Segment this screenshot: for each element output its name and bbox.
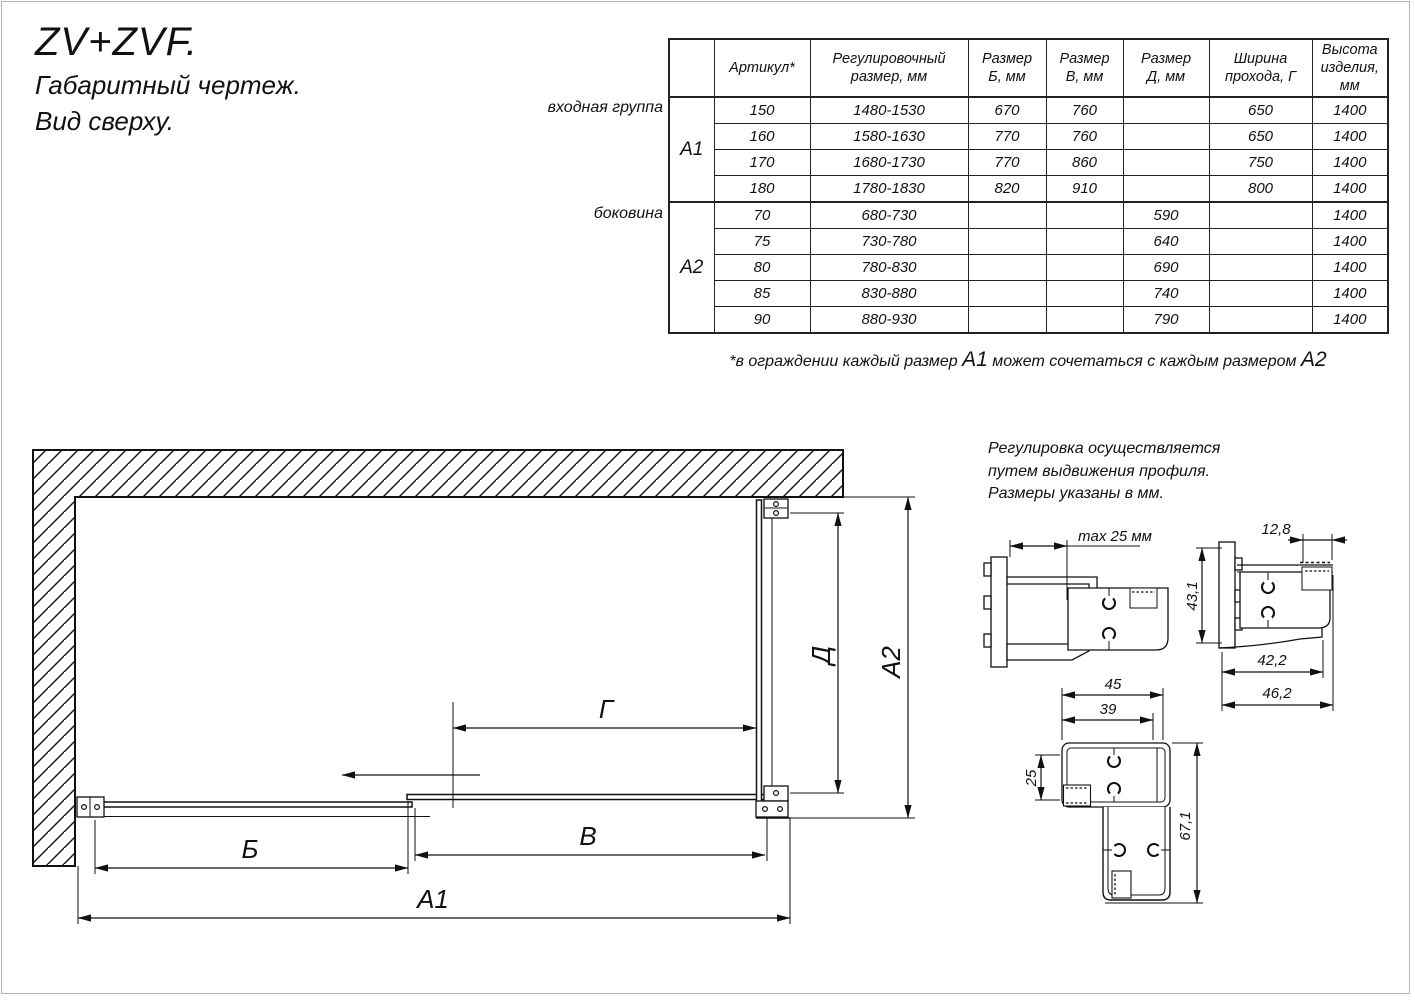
size-table: Артикул* Регулировочный размер, мм Разме… [668, 38, 1389, 334]
dim-label-46-2: 46,2 [1262, 685, 1292, 702]
dim-label-v: В [579, 821, 596, 851]
table-cell: 640 [1123, 229, 1209, 255]
header-height: Высота изделия, мм [1312, 39, 1388, 97]
header-size-b: Размер Б, мм [968, 39, 1046, 97]
dimensions: Б В А1 Г Д А2 [78, 497, 908, 918]
table-cell [1046, 307, 1123, 334]
header-size-d: Размер Д, мм [1123, 39, 1209, 97]
table-row: 180 1780-1830 820 910 800 1400 [669, 176, 1388, 203]
group-code-a2: А2 [669, 202, 714, 333]
dim-label-39: 39 [1100, 701, 1117, 718]
dim-label-b: Б [242, 834, 259, 864]
table-cell [1209, 255, 1312, 281]
table-row: 170 1680-1730 770 860 750 1400 [669, 150, 1388, 176]
wall-profile-bracket-left [77, 797, 104, 817]
side-panel-glass [757, 500, 762, 816]
table-cell [968, 307, 1046, 334]
table-cell: 80 [714, 255, 810, 281]
dim-label-12-8: 12,8 [1261, 521, 1291, 538]
table-cell: 170 [714, 150, 810, 176]
table-cell: 750 [1209, 150, 1312, 176]
header-article: Артикул* [714, 39, 810, 97]
table-cell [968, 229, 1046, 255]
header-adjust: Регулировочный размер, мм [810, 39, 968, 97]
table-row: А2 70 680-730 590 1400 [669, 202, 1388, 229]
footnote-a1: А1 [962, 348, 988, 371]
table-cell: 910 [1046, 176, 1123, 203]
table-cell: 1580-1630 [810, 124, 968, 150]
note-line: Регулировка осуществляется [988, 438, 1220, 461]
dim-label-67-1: 67,1 [1177, 811, 1194, 840]
table-cell: 760 [1046, 97, 1123, 124]
profile-detail-side: 12,8 43,1 42,2 46,2 [1184, 521, 1347, 711]
profile-detail-wall: max 25 мм [984, 528, 1168, 667]
wall-profile-bracket-top [764, 499, 788, 518]
table-cell [1209, 281, 1312, 307]
table-footnote: *в ограждении каждый размер А1 может соч… [668, 348, 1388, 372]
table-cell: 820 [968, 176, 1046, 203]
table-cell: 860 [1046, 150, 1123, 176]
table-cell: 1400 [1312, 97, 1388, 124]
table-cell: 670 [968, 97, 1046, 124]
table-cell [1123, 97, 1209, 124]
note-line: путем выдвижения профиля. [988, 461, 1220, 484]
table-cell: 1680-1730 [810, 150, 968, 176]
table-cell [1046, 229, 1123, 255]
dim-label-45: 45 [1105, 676, 1122, 693]
dim-label-42-2: 42,2 [1257, 652, 1287, 669]
table-cell [1209, 307, 1312, 334]
footnote-a2: А2 [1301, 348, 1327, 371]
table-cell: 650 [1209, 124, 1312, 150]
extension-lines [78, 497, 915, 924]
table-cell: 730-780 [810, 229, 968, 255]
table-cell [1046, 202, 1123, 229]
enclosure-plan [77, 499, 790, 818]
table-cell: 760 [1046, 124, 1123, 150]
table-cell: 160 [714, 124, 810, 150]
table-cell: 90 [714, 307, 810, 334]
drawing-subtitle: Габаритный чертеж. [35, 71, 301, 101]
fixed-panel-glass [90, 802, 412, 807]
table-cell: 1780-1830 [810, 176, 968, 203]
table-cell: 70 [714, 202, 810, 229]
table-cell: 740 [1123, 281, 1209, 307]
table-cell: 1400 [1312, 124, 1388, 150]
group-label-entrance: входная группа [443, 99, 663, 117]
note-line: Размеры указаны в мм. [988, 483, 1220, 506]
table-cell: 1480-1530 [810, 97, 968, 124]
footnote-text: *в ограждении каждый размер [729, 353, 962, 370]
dim-label-a2: А2 [876, 646, 906, 680]
table-cell: 790 [1123, 307, 1209, 334]
title-block: ZV+ZVF. Габаритный чертеж. Вид сверху. [35, 20, 301, 137]
table-cell [968, 255, 1046, 281]
dim-label-max25: max 25 мм [1078, 528, 1152, 545]
table-row: 160 1580-1630 770 760 650 1400 [669, 124, 1388, 150]
sliding-panel-glass [407, 795, 765, 800]
table-cell: 1400 [1312, 150, 1388, 176]
table-cell: 830-880 [810, 281, 968, 307]
table-cell [1123, 150, 1209, 176]
dim-label-a1: А1 [415, 884, 449, 914]
table-cell: 680-730 [810, 202, 968, 229]
table-cell: 150 [714, 97, 810, 124]
table-cell: 1400 [1312, 281, 1388, 307]
product-title: ZV+ZVF. [35, 20, 301, 65]
group-code-a1: А1 [669, 97, 714, 202]
table-cell [968, 202, 1046, 229]
table-cell: 1400 [1312, 255, 1388, 281]
table-cell [968, 281, 1046, 307]
table-header-row: Артикул* Регулировочный размер, мм Разме… [669, 39, 1388, 97]
table-cell: 1400 [1312, 176, 1388, 203]
table-cell: 1400 [1312, 307, 1388, 334]
table-cell: 1400 [1312, 202, 1388, 229]
profile-detail-corner: 45 39 25 67,1 [1023, 676, 1203, 903]
table-cell: 85 [714, 281, 810, 307]
dim-label-g: Г [599, 694, 615, 724]
table-cell: 1400 [1312, 229, 1388, 255]
table-cell [1123, 124, 1209, 150]
table-cell: 690 [1123, 255, 1209, 281]
table-cell [1046, 281, 1123, 307]
table-cell: 180 [714, 176, 810, 203]
drawing-page: Б В А1 Г Д А2 [0, 0, 1415, 1000]
group-label-sidewall: боковина [443, 205, 663, 223]
table-cell [1123, 176, 1209, 203]
table-cell: 780-830 [810, 255, 968, 281]
adjustment-note: Регулировка осуществляется путем выдвиже… [988, 438, 1220, 506]
view-subtitle: Вид сверху. [35, 107, 301, 137]
table-cell: 75 [714, 229, 810, 255]
table-cell: 590 [1123, 202, 1209, 229]
dim-label-43-1: 43,1 [1184, 581, 1201, 610]
table-cell: 650 [1209, 97, 1312, 124]
header-pass-width: Ширина прохода, Г [1209, 39, 1312, 97]
header-group [669, 39, 714, 97]
table-cell [1046, 255, 1123, 281]
table-row: 90 880-930 790 1400 [669, 307, 1388, 334]
table-cell [1209, 202, 1312, 229]
table-cell: 770 [968, 124, 1046, 150]
table-row: А1 150 1480-1530 670 760 650 1400 [669, 97, 1388, 124]
table-cell [1209, 229, 1312, 255]
table-row: 80 780-830 690 1400 [669, 255, 1388, 281]
table-cell: 880-930 [810, 307, 968, 334]
table-cell: 770 [968, 150, 1046, 176]
table-row: 85 830-880 740 1400 [669, 281, 1388, 307]
table-row: 75 730-780 640 1400 [669, 229, 1388, 255]
header-size-v: Размер В, мм [1046, 39, 1123, 97]
footnote-text: может сочетаться с каждым размером [988, 353, 1301, 370]
dim-label-25: 25 [1023, 769, 1040, 787]
dim-label-d: Д [806, 646, 836, 667]
table-cell: 800 [1209, 176, 1312, 203]
